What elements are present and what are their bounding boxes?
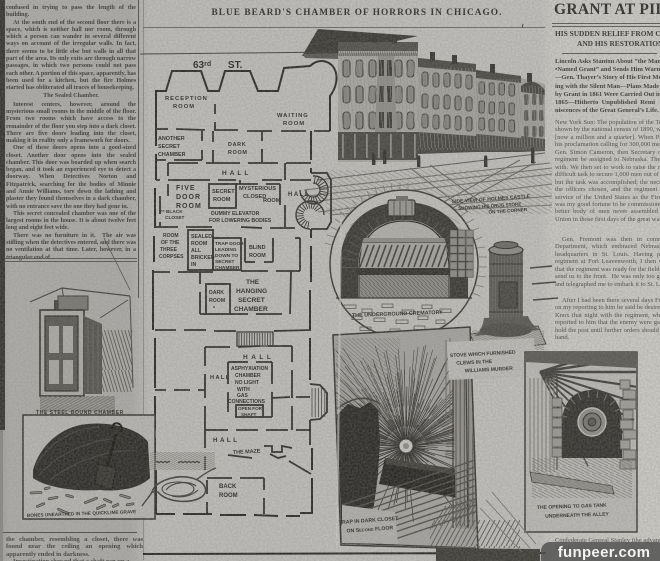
svg-text:ROOM: ROOM — [209, 298, 225, 304]
svg-text:ALL: ALL — [191, 248, 202, 254]
svg-text:SECRET: SECRET — [212, 189, 235, 195]
svg-text:HANGING: HANGING — [236, 288, 267, 295]
svg-text:SHAFT: SHAFT — [241, 412, 257, 417]
svg-text:DARK: DARK — [209, 290, 224, 296]
svg-text:CORPSES: CORPSES — [159, 254, 184, 260]
svg-text:NO LIGHT: NO LIGHT — [235, 380, 259, 386]
svg-text:BLIND: BLIND — [249, 245, 266, 251]
svg-text:FOR LOWERING BODIES: FOR LOWERING BODIES — [209, 218, 272, 224]
svg-text:FIVE: FIVE — [176, 185, 196, 192]
svg-text:BRICKED: BRICKED — [191, 255, 215, 261]
svg-text:CLOSET: CLOSET — [165, 215, 185, 221]
svg-text:RECEPTION: RECEPTION — [165, 96, 208, 102]
svg-text:DUMMY ELEVATOR: DUMMY ELEVATOR — [211, 211, 260, 217]
svg-text:SECRET: SECRET — [238, 297, 265, 304]
svg-text:ROOM: ROOM — [163, 233, 179, 239]
svg-text:ROOM: ROOM — [283, 121, 305, 127]
svg-text:HALL: HALL — [243, 354, 274, 361]
svg-text:SEALED: SEALED — [191, 234, 212, 240]
svg-text:THREE: THREE — [160, 247, 178, 253]
svg-text:DOOR: DOOR — [176, 194, 201, 201]
svg-text:ROOM: ROOM — [228, 150, 248, 156]
svg-text:CHAMBER: CHAMBER — [235, 373, 261, 379]
svg-text:ROOM: ROOM — [176, 203, 202, 210]
svg-text:HALL: HALL — [210, 375, 231, 381]
svg-text:ASPHYXIATION: ASPHYXIATION — [231, 366, 269, 372]
svg-text:WAITING: WAITING — [277, 113, 309, 119]
svg-text:OPEN FOR: OPEN FOR — [238, 406, 263, 411]
svg-text:HALL: HALL — [213, 437, 240, 444]
svg-text:HALL: HALL — [222, 170, 251, 177]
svg-text:THE: THE — [246, 279, 260, 286]
svg-text:SECRET: SECRET — [215, 259, 235, 265]
svg-text:THE MAZE: THE MAZE — [233, 449, 261, 456]
svg-text:TRAP DOOR: TRAP DOOR — [215, 241, 244, 247]
svg-text:CHAMBER: CHAMBER — [215, 265, 240, 271]
svg-text:LEADING: LEADING — [215, 247, 237, 253]
svg-text:CHAMBER: CHAMBER — [158, 152, 186, 158]
svg-text:BACK: BACK — [219, 484, 237, 490]
svg-text:ROOM: ROOM — [249, 253, 266, 259]
svg-text:ROOM: ROOM — [263, 198, 281, 204]
svg-text:ANOTHER: ANOTHER — [158, 136, 185, 142]
svg-text:*: * — [213, 306, 216, 312]
svg-text:ROOM: ROOM — [213, 197, 231, 203]
svg-text:*** BLACK: *** BLACK — [159, 209, 183, 215]
svg-text:ROOM: ROOM — [219, 493, 238, 499]
svg-text:SECRET: SECRET — [158, 144, 181, 150]
svg-text:CHAMBER: CHAMBER — [234, 306, 268, 313]
svg-text:ROOM: ROOM — [191, 241, 207, 247]
svg-text:MYSTERIOUS: MYSTERIOUS — [239, 186, 276, 192]
svg-text:ROOM: ROOM — [173, 104, 195, 110]
svg-text:DARK: DARK — [228, 142, 246, 148]
svg-text:IN: IN — [191, 262, 196, 268]
svg-text:63rd ST.: 63rd ST. — [193, 58, 243, 71]
svg-text:DOWN TO: DOWN TO — [215, 253, 238, 259]
svg-text:OF THE: OF THE — [161, 240, 180, 246]
